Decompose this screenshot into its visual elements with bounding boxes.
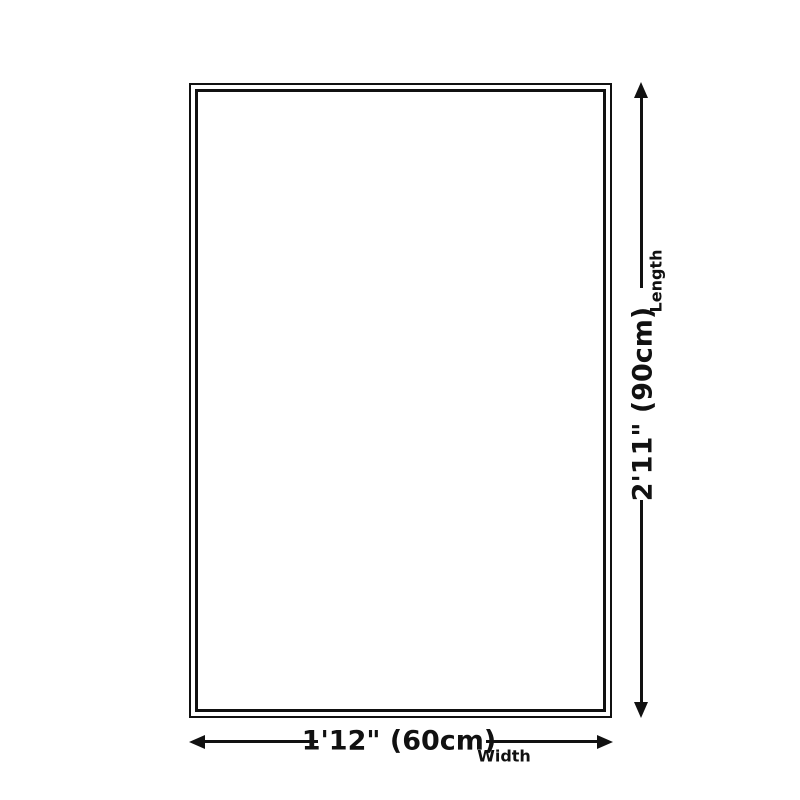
width-value: 1'12" (60cm): [302, 726, 496, 757]
rug-outline-outer: [189, 83, 612, 718]
width-arrow-left-icon: [189, 735, 205, 749]
width-dimension-line-right: [486, 740, 598, 743]
rug-outline-inner: [195, 89, 606, 712]
width-arrow-right-icon: [597, 735, 613, 749]
width-label: Width: [477, 747, 531, 766]
size-diagram: Length 2'11" (90cm) 1'12" (60cm) Width: [0, 0, 800, 800]
length-dimension-line-top: [640, 96, 643, 288]
length-value: 2'11" (90cm): [628, 307, 659, 501]
length-label: Length: [647, 250, 666, 313]
length-dimension-line-bottom: [640, 500, 643, 703]
length-arrow-down-icon: [634, 702, 648, 718]
